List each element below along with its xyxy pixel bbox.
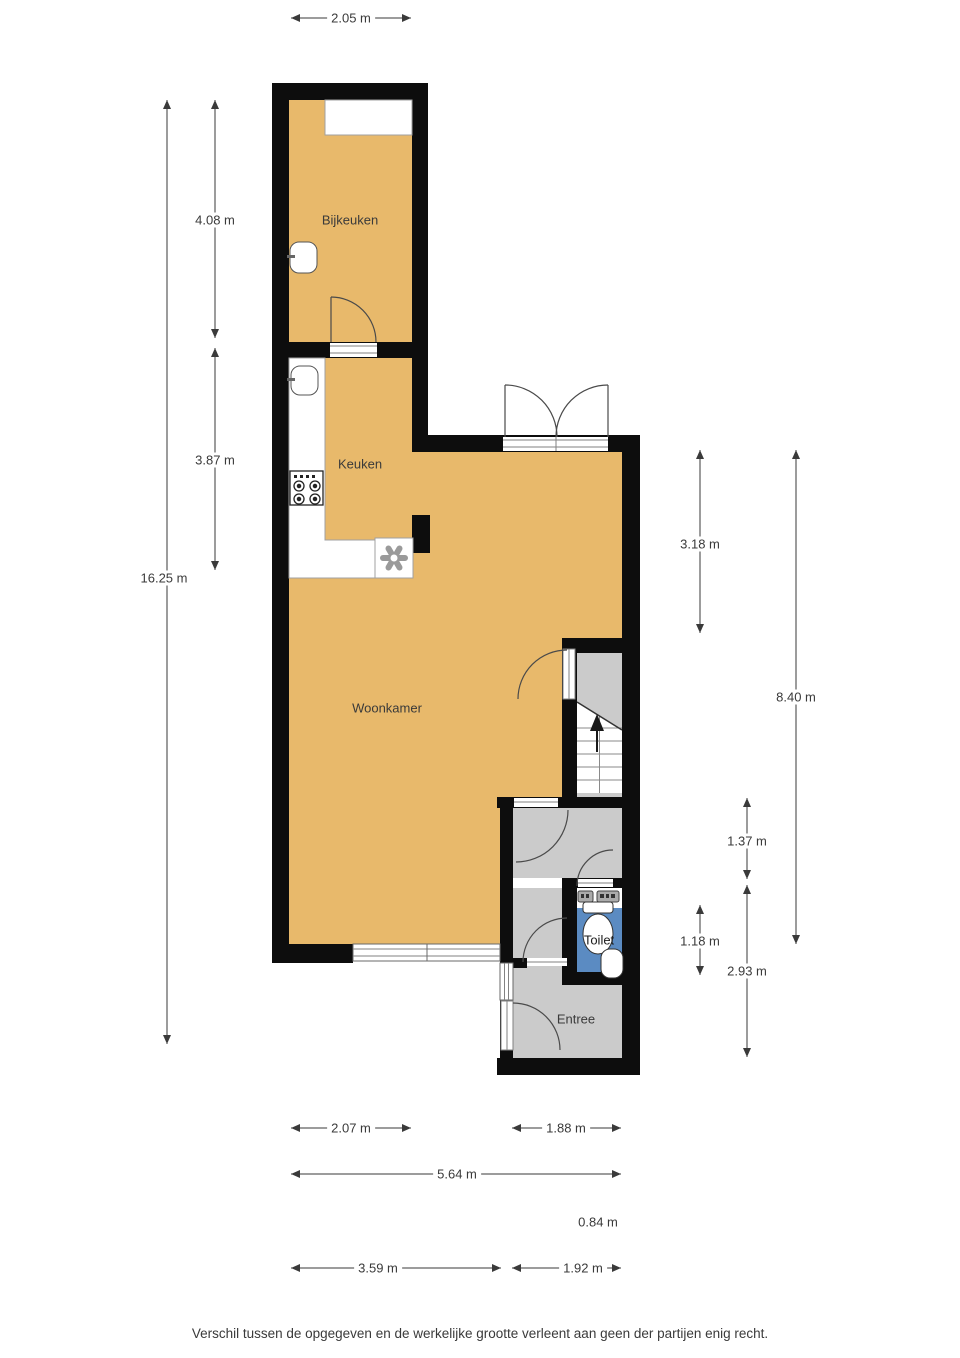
dimension-label-top-width: 2.05 m [327,11,375,26]
door-threshold [527,958,567,966]
dimension-label-bottom-right: 1.88 m [542,1121,590,1136]
dimension-label-right-upper: 3.18 m [676,537,724,552]
dimension-label-row2-left: 3.59 m [354,1261,402,1276]
dimension-label-bottom-small: 0.84 m [574,1215,622,1230]
dimension-label-right-total: 8.40 m [772,690,820,705]
extractor-flower-icon [375,538,413,578]
dimension-label-right-toilet: 1.18 m [676,934,724,949]
wall [272,83,289,963]
room-label-entree: Entree [557,1013,595,1026]
wall [272,83,428,100]
room-label-keuken: Keuken [338,458,382,471]
dimension-label-bottom-total: 5.64 m [433,1167,481,1182]
floor-plan-svg [0,0,960,1358]
wall [497,1058,640,1075]
washbasin-icon [601,949,623,978]
door-threshold [578,879,613,887]
footer-disclaimer: Verschil tussen de opgegeven en de werke… [0,1326,960,1341]
dimension-label-left-total: 16.25 m [137,571,192,586]
dimension-label-left-keuken: 3.87 m [191,453,239,468]
door-threshold [330,343,377,357]
worktop [325,100,412,135]
dimension-label-bottom-left: 2.07 m [327,1121,375,1136]
front-door-leaf [501,1001,513,1050]
wall [562,888,577,985]
dimension-label-row2-right: 1.92 m [559,1261,607,1276]
wall-chimney-stub [412,515,430,553]
door-threshold [514,798,558,807]
door-leaf [563,649,575,699]
hall-lower-floor [513,888,562,966]
dimension-label-left-bijkeuken: 4.08 m [191,213,239,228]
dimension-label-right-hall: 1.37 m [723,834,771,849]
window [353,944,500,961]
double-door-threshold [503,437,608,451]
room-label-toilet: Toilet [584,934,614,947]
double-door-arcs [505,385,608,437]
wall [412,83,428,452]
room-label-woonkamer: Woonkamer [352,702,422,715]
meter-icon [578,891,619,902]
room-label-bijkeuken: Bijkeuken [322,214,378,227]
dimension-label-right-lower: 2.93 m [723,964,771,979]
wall [272,944,353,963]
wall [562,972,640,985]
sink-icon [287,242,317,273]
window [500,963,513,1000]
floorplan-page: Bijkeuken Keuken Woonkamer Toilet Entree… [0,0,960,1358]
stove-icon [290,471,323,505]
